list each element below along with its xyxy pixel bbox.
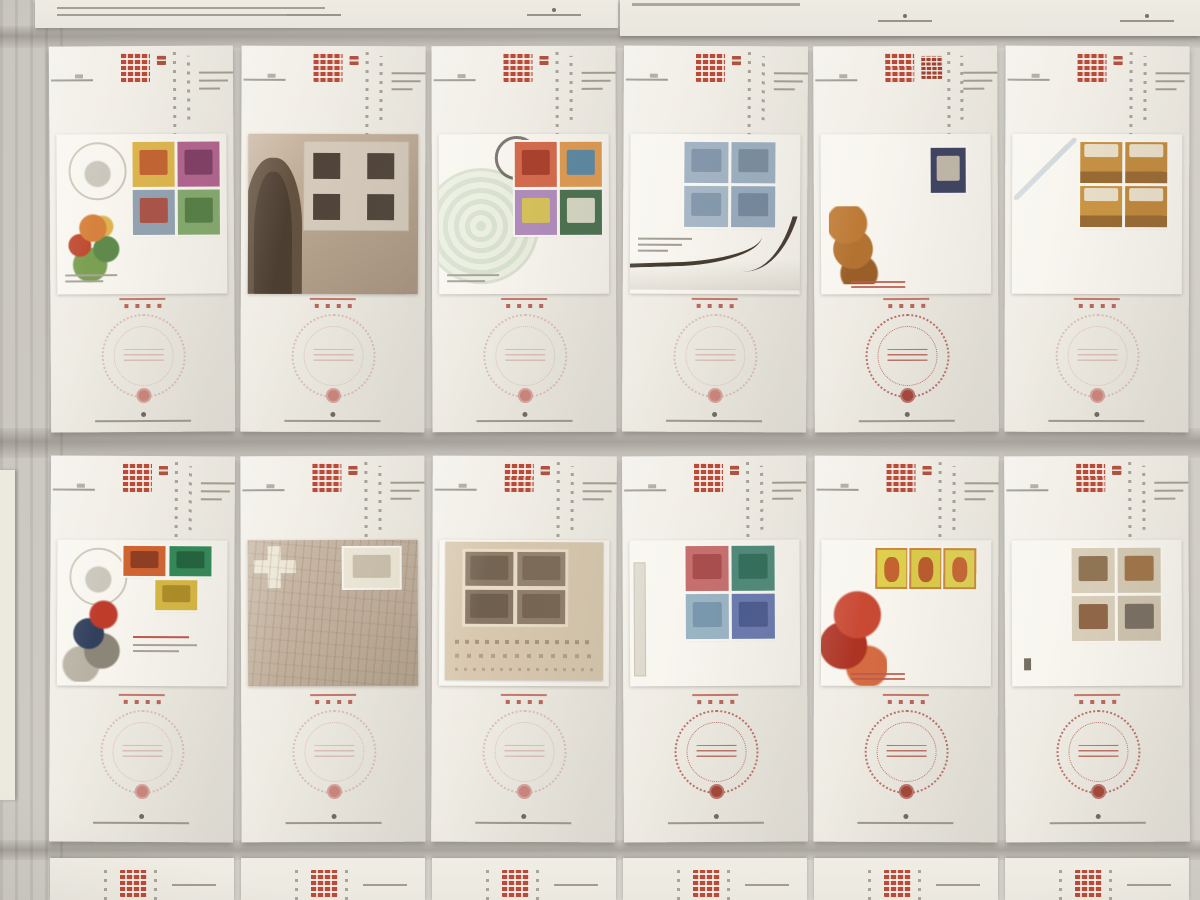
publisher-logo [521,814,526,819]
fdc-sheet [813,456,998,843]
stamp [1125,142,1167,183]
stamp [1072,548,1115,593]
publisher-logo [139,814,144,819]
dotted-column [189,466,192,530]
postmark-emblem [899,784,914,799]
header-rule [242,489,284,491]
stamp [178,190,220,235]
stamp [465,552,513,586]
fdc-sheet [240,46,425,433]
postmark-emblem [708,388,723,403]
dotted-column [1059,864,1062,900]
fdc-sheet [240,456,425,843]
dotted-column [173,52,177,136]
dotted-column [677,864,680,900]
subtitle-char [541,466,550,475]
dotted-column [746,462,749,546]
publisher-logo [331,814,336,819]
header-caption-line [745,884,789,886]
dotted-column [295,864,298,900]
stamp [1125,186,1167,227]
stamp [517,590,565,624]
header-caption-lines [391,72,425,96]
postmark-caption [1005,694,1189,705]
postmark [1055,314,1139,398]
header-caption-lines [390,482,424,506]
postmark [674,710,758,794]
first-day-cover [630,134,801,295]
stamp [684,142,728,183]
first-day-cover [57,540,228,687]
header-rule [1006,489,1048,491]
caption-lines [65,274,123,286]
publisher-logo [1095,814,1100,819]
diagonal [1014,138,1076,200]
stamp [943,548,976,589]
caption-lines [447,274,505,286]
mini-mark [1024,658,1031,670]
dotted-column [1143,56,1146,120]
publisher-logo-and-rule [527,8,581,16]
title-macau-partial [1075,870,1102,897]
circle-sketch [68,142,126,200]
stamp [684,186,728,227]
dotted-column [378,466,381,530]
stamp [1118,596,1161,641]
title-char [696,53,725,82]
postmark [292,710,376,794]
stamp [731,186,775,227]
dotted-column [486,864,489,900]
header-caption-lines [772,482,806,506]
sheet-footer [431,814,615,825]
postmark-emblem [900,388,915,403]
footer-rule [475,822,571,824]
header-rule [435,489,477,491]
title-macau-partial [884,870,911,897]
header-caption-line [172,884,216,886]
racer [59,596,133,682]
photo-scene [0,0,1200,900]
subtitle-char [1114,56,1123,65]
stamp [731,546,774,591]
postmark [101,314,186,399]
title-char [1078,53,1107,82]
stamp [465,590,513,624]
next-row-sheet-top [432,858,616,900]
stamp [1118,548,1161,593]
dotted-column [1142,466,1145,530]
postmark-emblem [326,388,341,403]
dotted-column [571,466,574,530]
postmark-caption [241,298,425,309]
left-strip [634,562,647,676]
footer-rule [668,822,764,825]
first-day-cover [821,134,992,295]
stamp [515,190,557,235]
first-day-cover [439,540,610,687]
footer-rule [95,420,191,423]
dotted-column [938,462,941,546]
title-char [694,463,723,492]
subtitle-char [350,56,359,65]
header-caption-lines [199,71,233,95]
postmark [100,710,184,794]
sheet-footer [1004,412,1188,423]
first-day-cover [248,134,419,295]
header-rule [51,79,93,81]
dotted-column [556,52,559,136]
title-macau-partial [120,870,147,897]
postmark-caption [623,298,807,309]
postmark-emblem [136,388,151,403]
stamp [123,546,165,576]
fine-print-text-block [57,3,325,16]
publisher-logo [1094,412,1099,417]
footer-rule [476,420,572,422]
header-rule [244,79,286,81]
dotted-column [760,466,763,530]
dotted-column [536,864,539,900]
adjacent-sheet-edge [0,470,15,800]
dotted-column [104,864,107,900]
postmark-emblem [518,388,533,403]
sheet-footer [815,412,999,423]
header-rule [815,79,857,81]
stamp [169,546,211,576]
postmark-caption [50,297,234,308]
postmark-emblem [1091,784,1106,799]
header-caption-lines [582,72,616,96]
footer-rule [284,420,380,422]
next-row-sheet-top [623,858,807,900]
header-caption-line [1127,884,1171,886]
sheet-footer [49,814,233,825]
sheet-footer [813,814,997,825]
stamp [155,580,197,610]
cut-sheet-bottom-left [35,0,618,28]
postmark-caption [241,694,425,705]
stamp [686,594,729,639]
header-caption-line [363,884,407,886]
header-rule [624,489,666,491]
next-row-sheet-top [814,858,998,900]
stamp [515,142,557,187]
publisher-logo [904,412,909,417]
header-rule [626,79,668,81]
fdc-sheet [431,456,617,843]
sheet-footer [1006,814,1190,825]
postmark-emblem [1090,388,1105,403]
postmark [673,314,757,398]
dotted-column [365,52,368,136]
sheet-footer [432,412,616,422]
fdc-sheet [1004,46,1189,433]
postmark-caption [814,298,998,309]
title-char [314,53,343,82]
first-day-cover [56,133,227,294]
title-char [504,53,533,82]
title-char [123,463,152,492]
stamp [560,142,602,187]
dotted-column [1109,864,1112,900]
fdc-sheet [813,46,999,433]
stamp [931,148,966,193]
dotted-column [570,56,573,120]
header-caption-lines [201,482,235,506]
subtitle-char [730,466,739,475]
first-day-cover [821,540,992,687]
postmark-emblem [327,784,342,799]
dotted-column [918,864,921,900]
dotted-column [556,462,559,546]
next-row-sheet-top [50,858,234,900]
stamp [732,594,775,639]
stamp [344,548,400,588]
stamp [177,142,219,187]
dotted-column [154,864,157,900]
postmark [482,710,566,794]
footer-rule [1048,420,1144,422]
dotted-column [345,864,348,900]
postmark-emblem [135,784,150,799]
header-caption-lines [583,482,617,506]
dotted-column [1129,52,1132,136]
header-caption-lines [1154,482,1188,506]
dotted-column [947,52,950,136]
publisher-logo [522,412,527,417]
postmark-emblem [517,784,532,799]
fdc-sheet [49,456,235,843]
title-macau-partial [693,870,720,897]
title-macau-partial [502,870,529,897]
postmark-emblem [709,784,724,799]
racer-note [133,636,205,656]
footer-rule [287,14,341,16]
postmark [864,710,948,794]
stamp [731,142,775,183]
first-day-cover [1012,540,1183,687]
publisher-logo [712,412,717,417]
stamp [132,142,174,187]
next-row-sheet-top [241,858,425,900]
fdc-sheet [1004,456,1190,843]
publisher-logo-and-rule [1120,14,1174,22]
subtitle-char [348,466,357,475]
fdc-sheet [622,456,808,843]
dotted-column [175,462,178,546]
postmark-caption [432,694,616,705]
dotted-column [187,56,190,120]
sheet-footer [51,411,235,422]
red-note [851,671,905,680]
title-char [1076,463,1105,492]
stamp [560,190,602,235]
sketch-band [455,636,593,677]
sheet-footer [242,814,426,825]
dotted-column [952,466,955,530]
header-caption-lines [964,482,998,506]
first-day-cover [1012,134,1183,295]
stamp [685,546,728,591]
header-caption-line [554,884,598,886]
subtitle-char [732,56,741,65]
subtitle-char [540,56,549,65]
cut-sheet-bottom-right [620,0,1200,36]
publisher-logo-and-rule [878,14,932,22]
fdc-sheet [622,46,808,433]
row-shadow [0,840,1200,860]
stamp [1080,186,1122,227]
footer-rule [666,420,762,423]
footer-rule [286,822,382,824]
fdc-sheet [431,46,616,432]
bouquet [63,206,123,284]
publisher-logo [713,814,718,819]
publisher-logo [141,412,146,417]
postmark [483,314,567,398]
stamp [1072,596,1115,641]
stamp [1080,142,1122,183]
footer-rule [93,822,189,825]
postmark [865,314,949,398]
dotted-column [868,864,871,900]
header-caption-lines [774,72,808,96]
postmark-caption [623,694,807,705]
subtitle-char [157,56,166,65]
title-char [312,463,341,492]
dotted-column [748,52,751,136]
publisher-logo [903,814,908,819]
footer-rule [857,822,953,824]
header-rule [1008,79,1050,81]
postmark [1056,710,1140,794]
header-caption-lines [1155,72,1189,96]
sheet-footer [240,412,424,423]
postmark-caption [1005,298,1189,309]
dotted-column [727,864,730,900]
header-rule [434,79,476,81]
dotted-column [1128,462,1131,546]
first-day-cover [629,540,800,687]
header-caption-line [936,884,980,886]
fdc-sheet [49,45,235,432]
dotted-column [364,462,367,546]
sheet-footer [622,412,806,423]
stamp [133,190,175,235]
title-char [885,53,914,82]
publisher-logo [330,412,335,417]
footer-rule [1050,822,1146,824]
header-caption-lines [963,72,997,96]
win-grid [304,142,408,230]
dotted-column [762,56,765,120]
first-day-cover [439,134,609,294]
header-rule [53,489,95,491]
title-char [121,53,150,82]
fine-print-line [632,3,800,6]
subtitle-char [159,466,168,475]
title-macau-partial [311,870,338,897]
subtitle-char [923,466,932,475]
header-rule [817,489,859,491]
title-char [505,463,534,492]
stamp [875,548,908,589]
stamp [909,548,942,589]
subtitle-char [1112,466,1121,475]
sheet-footer [624,814,808,825]
postmark-caption [50,694,234,705]
postmark-caption [432,298,616,308]
postmark-caption [814,694,998,705]
postmark [291,314,375,398]
red-note [851,279,905,288]
footer-rule [859,420,955,422]
dotted-column [379,56,382,120]
title-char [887,463,916,492]
subtitle-char [921,56,942,79]
next-row-sheet-top [1005,858,1189,900]
dog [829,206,879,284]
first-day-cover [248,540,419,687]
arch [248,158,302,295]
stamp [517,552,565,586]
row-shadow [0,428,1200,458]
